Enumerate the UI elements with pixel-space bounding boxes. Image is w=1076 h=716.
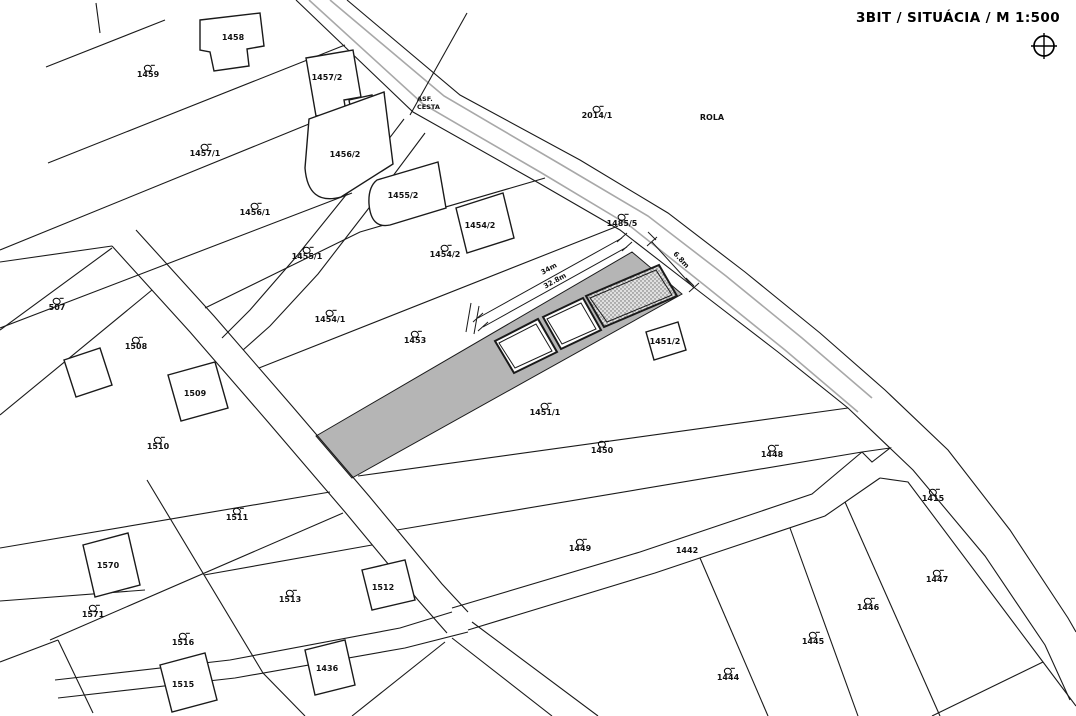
- land-use-symbol-icon: [441, 245, 449, 252]
- parcel-label: 1455/2: [388, 192, 419, 200]
- land-use-symbol-icon: [154, 437, 162, 444]
- parcel-label: 2014/1: [582, 106, 613, 120]
- crosshair-compass-icon: [1030, 32, 1058, 60]
- land-use-symbol-icon: [201, 144, 209, 151]
- parcel-label: 1450: [591, 441, 613, 455]
- land-use-symbol-icon: [933, 570, 941, 577]
- parcel-label: 1454/1: [315, 310, 346, 324]
- land-use-symbol-icon: [251, 203, 259, 210]
- situacia-plan-page: 145914581457/21457/11456/21456/11455/214…: [0, 0, 1076, 716]
- land-use-symbol-icon: [233, 508, 241, 515]
- parcel-label: 1457/1: [190, 144, 221, 158]
- land-use-symbol-icon: [593, 106, 601, 113]
- parcel-label: 1449: [569, 539, 591, 553]
- land-use-symbol-icon: [576, 539, 584, 546]
- parcel-label: 1445: [802, 632, 824, 646]
- parcel-label: ROLA: [700, 114, 724, 122]
- parcel-label: 1458: [222, 34, 244, 42]
- parcel-label: 507: [49, 298, 66, 312]
- land-use-symbol-icon: [179, 633, 187, 640]
- land-use-symbol-icon: [89, 605, 97, 612]
- parcel-label: 1456/1: [240, 203, 271, 217]
- parcel-label: 1448: [761, 445, 783, 459]
- parcel-label: 1451/2: [650, 338, 681, 346]
- parcel-label: 1454/2: [465, 222, 496, 230]
- land-use-symbol-icon: [132, 337, 140, 344]
- land-use-symbol-icon: [411, 331, 419, 338]
- parcel-label: 1455/1: [292, 247, 323, 261]
- land-use-symbol-icon: [303, 247, 311, 254]
- parcel-label: 1571: [82, 605, 104, 619]
- land-use-symbol-icon: [724, 668, 732, 675]
- parcel-label: 1457/2: [312, 74, 343, 82]
- parcel-label: 1511: [226, 508, 248, 522]
- land-use-symbol-icon: [809, 632, 817, 639]
- land-use-symbol-icon: [929, 489, 937, 496]
- road-surface-label: ASF. CESTA: [417, 95, 440, 111]
- parcel-label: 1485/5: [607, 214, 638, 228]
- parcel-label: 1512: [372, 584, 394, 592]
- parcel-label: 1436: [316, 665, 338, 673]
- land-use-symbol-icon: [326, 310, 334, 317]
- parcel-label: 1459: [137, 65, 159, 79]
- parcel-label: 1451/1: [530, 403, 561, 417]
- parcel-label: 1453: [404, 331, 426, 345]
- land-use-symbol-icon: [768, 445, 776, 452]
- land-use-symbol-icon: [618, 214, 626, 221]
- parcel-label: 1415: [922, 489, 944, 503]
- parcel-label: 1444: [717, 668, 739, 682]
- parcel-label: 1508: [125, 337, 147, 351]
- land-use-symbol-icon: [53, 298, 61, 305]
- page-title: 3BIT / SITUÁCIA / M 1:500: [856, 10, 1060, 26]
- parcel-label: 1509: [184, 390, 206, 398]
- land-use-symbol-icon: [144, 65, 152, 72]
- parcel-label: 1442: [676, 547, 698, 555]
- cadastral-map-canvas: [0, 0, 1076, 716]
- parcel-label: 1570: [97, 562, 119, 570]
- parcel-label: 1447: [926, 570, 948, 584]
- land-use-symbol-icon: [541, 403, 549, 410]
- parcel-label: 1456/2: [330, 151, 361, 159]
- land-use-symbol-icon: [598, 441, 606, 448]
- parcel-label: 1454/2: [430, 245, 461, 259]
- parcel-label: 1513: [279, 590, 301, 604]
- land-use-symbol-icon: [286, 590, 294, 597]
- parcel-label: 1510: [147, 437, 169, 451]
- parcel-label: 1515: [172, 681, 194, 689]
- land-use-symbol-icon: [864, 598, 872, 605]
- parcel-label: 1446: [857, 598, 879, 612]
- parcel-label: 1516: [172, 633, 194, 647]
